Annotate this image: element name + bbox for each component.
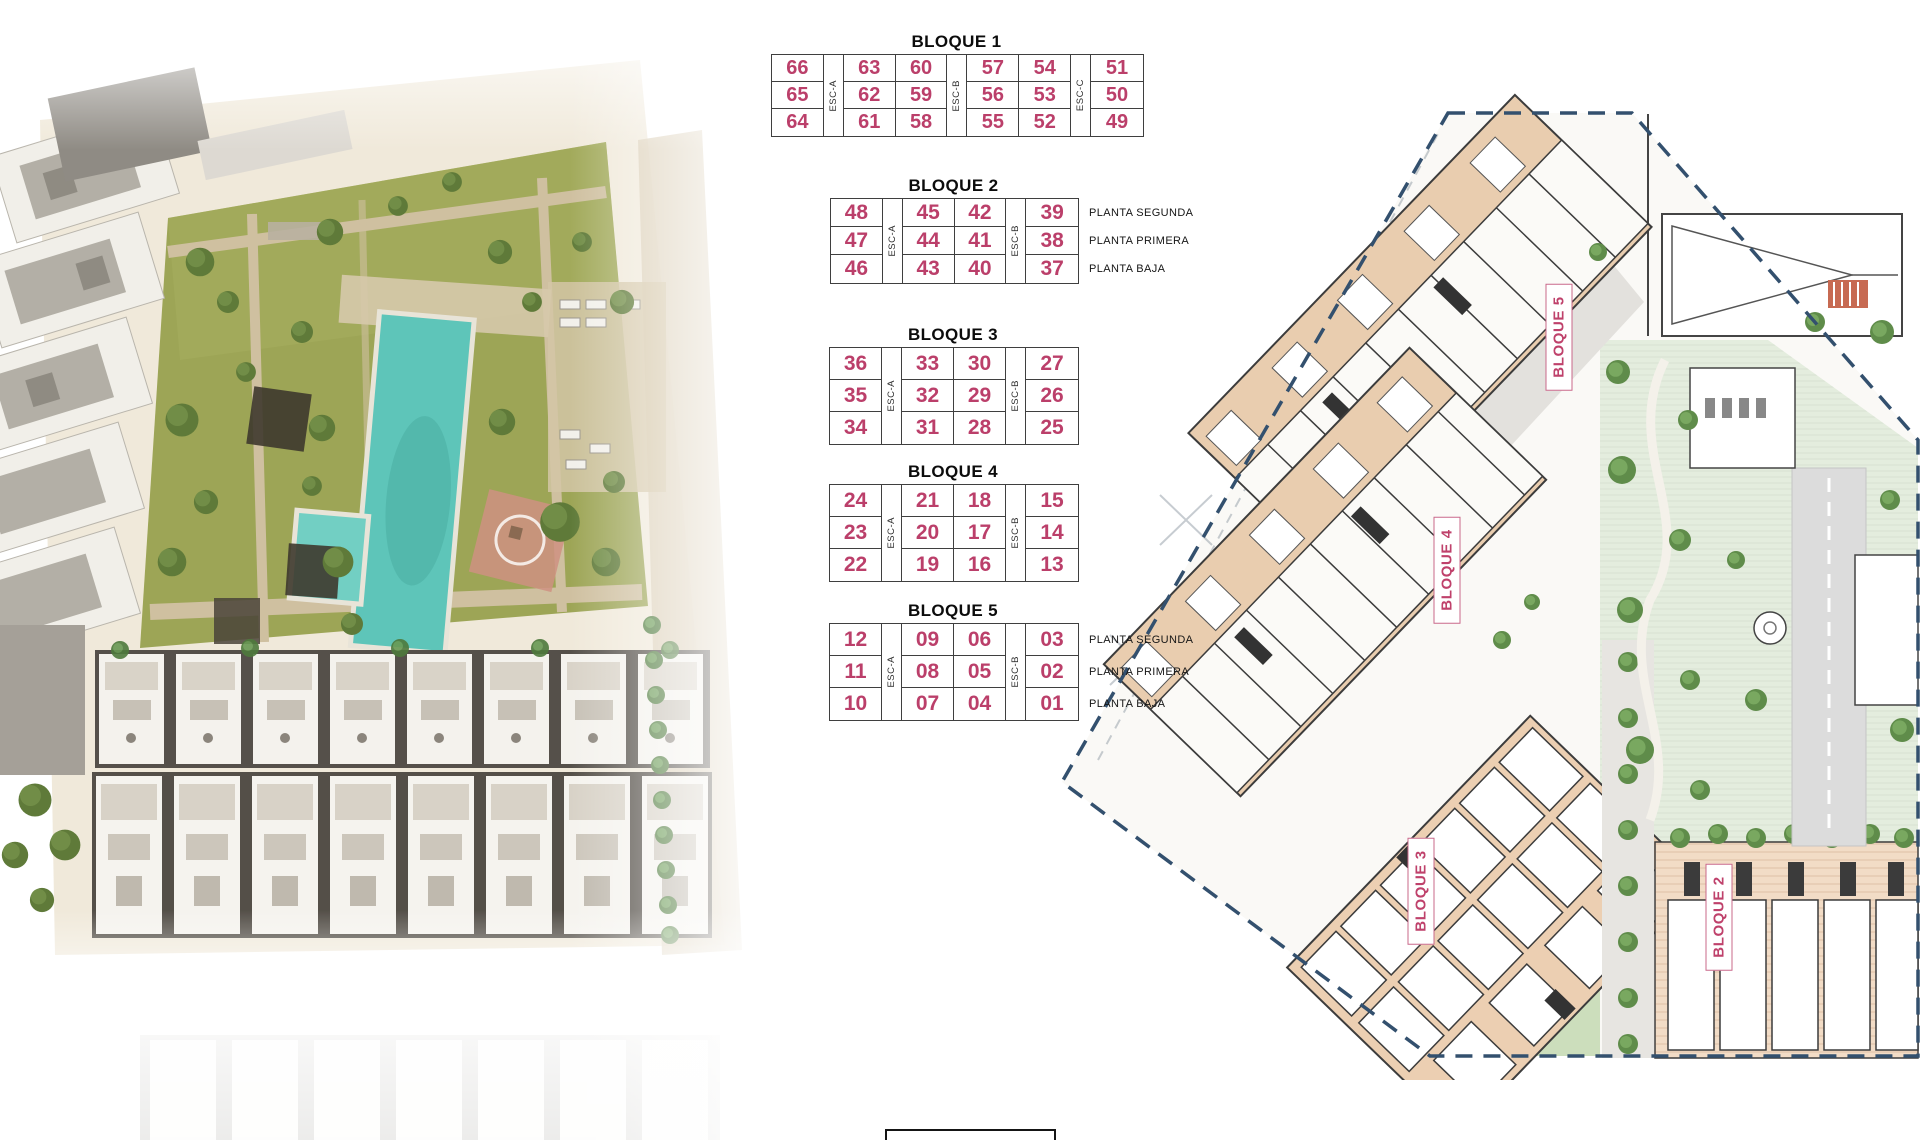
escalera-label: ESC-B <box>1010 225 1021 257</box>
unit-cell: 60 <box>896 55 948 82</box>
planta-label: PLANTA BAJA <box>1089 688 1165 720</box>
bloque-title: BLOQUE 4 <box>829 462 1077 484</box>
unit-cell: 21 <box>902 485 954 517</box>
unit-cell: 51 <box>1091 55 1143 82</box>
unit-cell: 20 <box>902 517 954 549</box>
unit-cell: 22 <box>830 549 882 581</box>
aerial-render <box>0 0 800 1140</box>
unit-cell: 09 <box>902 624 954 656</box>
unit-cell: 27 <box>1026 348 1078 380</box>
unit-cell: 58 <box>896 109 948 136</box>
escalera-label: ESC-A <box>886 517 897 549</box>
unit-cell: 32 <box>902 380 954 412</box>
escalera-label: ESC-A <box>828 80 839 112</box>
plan-label-bloque-2: BLOQUE 2 <box>1706 863 1733 970</box>
bloque-4: BLOQUE 4242322ESC-A212019181716ESC-B1514… <box>829 462 1079 582</box>
bloque-table: 121110ESC-A090807060504ESC-B030201 <box>829 623 1079 721</box>
unit-cell: 28 <box>954 412 1006 444</box>
unit-cell: 06 <box>954 624 1006 656</box>
unit-cell: 39 <box>1026 199 1078 227</box>
escalera-cell: ESC-B <box>1006 348 1026 444</box>
unit-cell: 10 <box>830 688 882 720</box>
unit-cell: 63 <box>844 55 896 82</box>
planta-label: PLANTA SEGUNDA <box>1089 199 1193 227</box>
unit-cell: 48 <box>831 199 883 227</box>
bloque-title: BLOQUE 5 <box>829 601 1077 623</box>
unit-cell: 15 <box>1026 485 1078 517</box>
escalera-label: ESC-B <box>1010 517 1021 549</box>
unit-cell: 56 <box>967 82 1019 109</box>
unit-cell: 08 <box>902 656 954 688</box>
bloque-title: BLOQUE 3 <box>829 325 1077 347</box>
unit-cell: 26 <box>1026 380 1078 412</box>
escalera-cell: ESC-B <box>1006 624 1026 720</box>
legend-box-partial <box>885 1129 1056 1140</box>
unit-cell: 02 <box>1026 656 1078 688</box>
unit-cell: 30 <box>954 348 1006 380</box>
bloque-2: BLOQUE 2484746ESC-A454443424140ESC-B3938… <box>830 176 1079 284</box>
unit-cell: 01 <box>1026 688 1078 720</box>
unit-cell: 33 <box>902 348 954 380</box>
unit-cell: 11 <box>830 656 882 688</box>
bloque-title: BLOQUE 2 <box>830 176 1077 198</box>
unit-cell: 59 <box>896 82 948 109</box>
unit-cell: 66 <box>772 55 824 82</box>
unit-cell: 61 <box>844 109 896 136</box>
unit-cell: 65 <box>772 82 824 109</box>
unit-cell: 49 <box>1091 109 1143 136</box>
escalera-label: ESC-B <box>951 80 962 112</box>
unit-cell: 23 <box>830 517 882 549</box>
plan-label-bloque-4: BLOQUE 4 <box>1434 516 1461 623</box>
escalera-cell: ESC-B <box>947 55 967 136</box>
bloque-title: BLOQUE 1 <box>771 32 1142 54</box>
planta-label: PLANTA PRIMERA <box>1089 227 1189 255</box>
plan-label-bloque-5: BLOQUE 5 <box>1546 283 1573 390</box>
unit-cell: 19 <box>902 549 954 581</box>
unit-cell: 45 <box>903 199 955 227</box>
unit-cell: 03 <box>1026 624 1078 656</box>
bloque-1: BLOQUE 1666564ESC-A636261605958ESC-B5756… <box>771 32 1144 137</box>
unit-cell: 04 <box>954 688 1006 720</box>
planta-label: PLANTA PRIMERA <box>1089 656 1189 688</box>
escalera-label: ESC-A <box>887 225 898 257</box>
escalera-cell: ESC-C <box>1071 55 1091 136</box>
escalera-cell: ESC-A <box>882 348 902 444</box>
bloque-table: 666564ESC-A636261605958ESC-B575655545352… <box>771 54 1144 137</box>
escalera-cell: ESC-A <box>882 624 902 720</box>
unit-cell: 24 <box>830 485 882 517</box>
escalera-label: ESC-C <box>1075 79 1086 111</box>
unit-cell: 25 <box>1026 412 1078 444</box>
escalera-label: ESC-B <box>1010 656 1021 688</box>
unit-cell: 14 <box>1026 517 1078 549</box>
bloque-5: BLOQUE 5121110ESC-A090807060504ESC-B0302… <box>829 601 1079 721</box>
unit-cell: 13 <box>1026 549 1078 581</box>
unit-cell: 35 <box>830 380 882 412</box>
bloque-3: BLOQUE 3363534ESC-A333231302928ESC-B2726… <box>829 325 1079 445</box>
unit-cell: 57 <box>967 55 1019 82</box>
unit-cell: 12 <box>830 624 882 656</box>
planta-label: PLANTA BAJA <box>1089 255 1165 283</box>
unit-cell: 18 <box>954 485 1006 517</box>
unit-cell: 07 <box>902 688 954 720</box>
unit-cell: 42 <box>955 199 1007 227</box>
unit-cell: 17 <box>954 517 1006 549</box>
escalera-cell: ESC-B <box>1006 199 1026 283</box>
brochure-canvas: BLOQUE 5 BLOQUE 4 BLOQUE 3 BLOQUE 2 BLOQ… <box>0 0 1920 1140</box>
unit-cell: 34 <box>830 412 882 444</box>
escalera-cell: ESC-B <box>1006 485 1026 581</box>
escalera-cell: ESC-A <box>824 55 844 136</box>
bloque-table: 363534ESC-A333231302928ESC-B272625 <box>829 347 1079 445</box>
unit-cell: 43 <box>903 255 955 283</box>
escalera-label: ESC-B <box>1010 380 1021 412</box>
unit-cell: 46 <box>831 255 883 283</box>
unit-cell: 31 <box>902 412 954 444</box>
unit-cell: 64 <box>772 109 824 136</box>
unit-cell: 53 <box>1019 82 1071 109</box>
unit-cell: 47 <box>831 227 883 255</box>
unit-cell: 16 <box>954 549 1006 581</box>
unit-cell: 62 <box>844 82 896 109</box>
unit-cell: 38 <box>1026 227 1078 255</box>
unit-cell: 50 <box>1091 82 1143 109</box>
bloque-table: 484746ESC-A454443424140ESC-B393837 <box>830 198 1079 284</box>
unit-cell: 36 <box>830 348 882 380</box>
unit-cell: 52 <box>1019 109 1071 136</box>
escalera-cell: ESC-A <box>882 485 902 581</box>
escalera-label: ESC-A <box>886 380 897 412</box>
unit-cell: 41 <box>955 227 1007 255</box>
unit-cell: 29 <box>954 380 1006 412</box>
unit-cell: 40 <box>955 255 1007 283</box>
escalera-cell: ESC-A <box>883 199 903 283</box>
unit-cell: 37 <box>1026 255 1078 283</box>
unit-cell: 54 <box>1019 55 1071 82</box>
unit-cell: 05 <box>954 656 1006 688</box>
plan-label-bloque-3: BLOQUE 3 <box>1408 837 1435 944</box>
planta-label: PLANTA SEGUNDA <box>1089 624 1193 656</box>
escalera-label: ESC-A <box>886 656 897 688</box>
bloque-table: 242322ESC-A212019181716ESC-B151413 <box>829 484 1079 582</box>
unit-cell: 44 <box>903 227 955 255</box>
unit-cell: 55 <box>967 109 1019 136</box>
